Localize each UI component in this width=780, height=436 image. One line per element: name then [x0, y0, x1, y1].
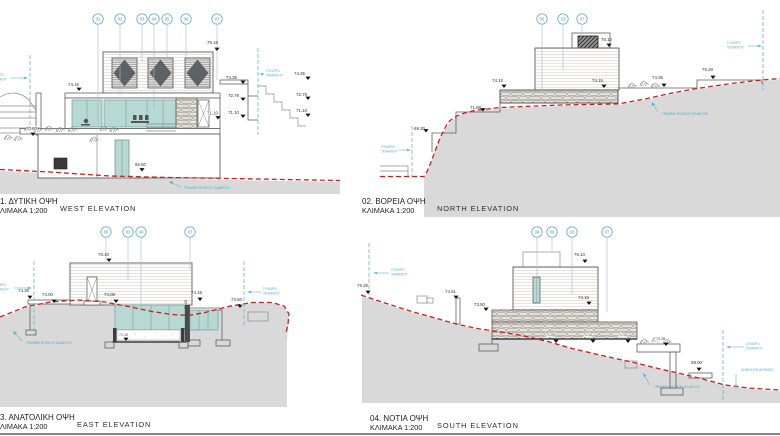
svg-text:71.10: 71.10: [119, 333, 128, 337]
title-scale: ΚΛΙΜΑΚΑ 1:200: [370, 423, 422, 432]
svg-text:70.28: 70.28: [656, 337, 665, 341]
svg-text:73.50: 73.50: [231, 297, 243, 302]
boundary-label: ΣΥΝΟΡΟ ΤΕΜΑΧΙΟΥ: [381, 145, 411, 154]
svg-text:03: 03: [126, 230, 131, 235]
glass-wall: [115, 305, 185, 330]
svg-text:ΔΗΜΟΣΙΟΣ ΔΡΟΜΟΣ: ΔΗΜΟΣΙΟΣ ΔΡΟΜΟΣ: [741, 368, 774, 372]
building-ground-floor: [38, 134, 220, 178]
svg-text:71.05: 71.05: [546, 333, 555, 337]
title-english: NORTH ELEVATION: [437, 204, 519, 213]
level-label: 74.15: [68, 82, 82, 91]
glass-wall: [190, 310, 218, 330]
svg-text:06: 06: [104, 230, 109, 235]
boundary-label: ΣΥΝΟΡΟ ΤΕΜΑΧΙΟΥ: [259, 69, 284, 78]
level-label: 73.50: [474, 302, 489, 311]
svg-text:ΤΕΜΑΧΙΟΥ: ΤΕΜΑΧΙΟΥ: [263, 292, 281, 296]
boundary-label: ΣΥΝΟΡΟ ΤΕΜΑΧΙΟΥ: [727, 41, 762, 50]
level-label: 75.28: [702, 67, 716, 79]
svg-text:07: 07: [605, 230, 610, 235]
chimney: [578, 36, 598, 48]
building-upper-block: [70, 263, 192, 305]
svg-text:07: 07: [215, 17, 220, 22]
svg-text:ΣΥΝΟΡΟ: ΣΥΝΟΡΟ: [746, 342, 760, 346]
boundary-label: ΣΥΝΟΡΟ ΤΕΜΑΧΙΟΥ: [247, 287, 281, 296]
dark-pier: [185, 305, 190, 342]
svg-text:03: 03: [561, 17, 566, 22]
svg-text:74.15: 74.15: [578, 295, 590, 300]
level-label: 75.28: [357, 283, 371, 294]
svg-text:06: 06: [540, 17, 545, 22]
title-english: EAST ELEVATION: [77, 420, 151, 429]
svg-text:75.28: 75.28: [702, 67, 714, 72]
svg-text:ΤΕΜΑΧΙΟΥ: ΤΕΜΑΧΙΟΥ: [381, 150, 399, 154]
svg-text:66.50: 66.50: [135, 162, 147, 167]
planting: [628, 81, 660, 88]
louver-window: [185, 58, 210, 88]
svg-text:ΓΡΑΜΜΗ ΦΥΣΙΚΟΥ ΕΔΑΦΟΥΣ: ΓΡΑΜΜΗ ΦΥΣΙΚΟΥ ΕΔΑΦΟΥΣ: [662, 112, 708, 116]
title-greek: 3. ΑΝΑΤΟΛΙΚΗ ΟΨΗ: [0, 413, 75, 422]
svg-text:71.10: 71.10: [618, 333, 627, 337]
svg-text:06: 06: [184, 17, 189, 22]
east-elevation-view: ΣΥΝΟΡΟ ΤΕΜΑΧΙΟΥ ΣΥΝΟΡΟ ΤΕΜΑΧΙΟΥ ΓΡΑΜΜΗ Φ…: [0, 227, 289, 431]
svg-text:76.10: 76.10: [98, 252, 110, 257]
right-wing: [220, 80, 306, 126]
svg-text:ΤΕΜΑΧΙΟΥ: ΤΕΜΑΧΙΟΥ: [746, 347, 764, 351]
svg-text:ΣΥΝΟΡΟ: ΣΥΝΟΡΟ: [381, 145, 395, 149]
louver-window: [112, 58, 137, 88]
svg-text:03: 03: [570, 230, 575, 235]
svg-text:74.08: 74.08: [104, 292, 116, 297]
level-label: 72.79: [296, 92, 311, 100]
svg-text:74.35: 74.35: [652, 75, 664, 80]
svg-text:ΣΥΝΟΡΟ: ΣΥΝΟΡΟ: [727, 41, 741, 45]
svg-text:71.10: 71.10: [207, 111, 219, 116]
level-label: 71.10: [228, 110, 246, 118]
boundary-label: ΣΥΝΟΡΟ ΤΕΜΑΧΙΟΥ: [373, 268, 409, 277]
view-title: 3. ΑΝΑΤΟΛΙΚΗ ΟΨΗ ΛΙΜΑΚΑ 1:200 EAST ELEVA…: [0, 413, 151, 431]
level-label: 76.10: [574, 252, 588, 263]
svg-text:07: 07: [188, 230, 193, 235]
svg-text:ΤΕΜΑΧΙΟΥ: ΤΕΜΑΧΙΟΥ: [727, 46, 745, 50]
svg-text:01: 01: [96, 17, 101, 22]
section-marker: 05: [162, 14, 172, 58]
svg-text:ΣΥΝΟΡΟ: ΣΥΝΟΡΟ: [0, 283, 6, 287]
title-greek: 1. ΔΥΤΙΚΗ ΟΨΗ: [0, 197, 58, 206]
svg-text:74.15: 74.15: [592, 78, 604, 83]
svg-text:76.10: 76.10: [574, 252, 586, 257]
title-english: WEST ELEVATION: [60, 204, 136, 213]
svg-text:06: 06: [550, 230, 555, 235]
terrace-slab: [20, 129, 220, 135]
svg-text:ΤΕΜΑΧΙΟΥ: ΤΕΜΑΧΙΟΥ: [266, 74, 284, 78]
view-title: 04. ΝΟΤΙΑ ΟΨΗ ΚΛΙΜΑΚΑ 1:200 SOUTH ELEVAT…: [370, 414, 519, 432]
north-elevation-view: ΣΥΝΟΡΟ ΤΕΜΑΧΙΟΥ ΣΥΝΟΡΟ ΤΕΜΑΧΙΟΥ ΓΡΑΜΜΗ Φ…: [362, 10, 780, 217]
svg-text:74.35: 74.35: [18, 288, 30, 293]
boundary-label: ΣΥΝΟΡΟ ΤΕΜΑΧΙΟΥ: [0, 73, 28, 82]
south-elevation-view: ΣΥΝΟΡΟ ΤΕΜΑΧΙΟΥ ΣΥΝΟΡΟ ΤΕΜΑΧΙΟΥ ΔΗΜΟΣΙΟΣ…: [357, 227, 780, 432]
level-label: 74.35: [18, 288, 33, 299]
stone-wall: [500, 90, 618, 103]
basement-window: [54, 158, 67, 169]
svg-text:ΓΡΑΜΜΗ ΦΥΣΙΚΟΥ ΕΔΑΦΟΥΣ: ΓΡΑΜΜΗ ΦΥΣΙΚΟΥ ΕΔΑΦΟΥΣ: [654, 385, 700, 389]
svg-text:74.00: 74.00: [42, 292, 54, 297]
view-title: 1. ΔΥΤΙΚΗ ΟΨΗ ΛΙΜΑΚΑ 1:200 WEST ELEVATIO…: [0, 197, 136, 215]
section-marker: 06: [181, 14, 191, 58]
west-elevation-view: ΣΥΝΟΡΟ ΤΕΜΑΧΙΟΥ ΣΥΝΟΡΟ ΤΕΜΑΧΙΟΥ ΓΡΑΜΜΗ Φ…: [0, 14, 340, 215]
public-road-label: ΔΗΜΟΣΙΟΣ ΔΡΟΜΟΣ: [735, 368, 774, 389]
svg-text:70.80: 70.80: [26, 126, 38, 131]
svg-text:71.10: 71.10: [583, 333, 592, 337]
svg-text:72.79: 72.79: [228, 93, 240, 98]
title-scale: ΛΙΜΑΚΑ 1:200: [0, 206, 47, 215]
svg-text:ΣΥΝΟΡΟ: ΣΥΝΟΡΟ: [263, 287, 277, 291]
svg-text:03: 03: [140, 17, 145, 22]
svg-text:ΤΕΜΑΧΙΟΥ: ΤΕΜΑΧΙΟΥ: [391, 273, 409, 277]
svg-text:72.79: 72.79: [296, 92, 308, 97]
level-label: 74.35: [294, 71, 311, 80]
level-label: 71.10: [296, 108, 311, 117]
svg-text:73.25: 73.25: [184, 300, 188, 309]
drawing-sheet: ΣΥΝΟΡΟ ΤΕΜΑΧΙΟΥ ΣΥΝΟΡΟ ΤΕΜΑΧΙΟΥ ΓΡΑΜΜΗ Φ…: [0, 0, 780, 436]
level-label: 76.10: [98, 252, 112, 262]
svg-text:71.10: 71.10: [296, 108, 308, 113]
title-english: SOUTH ELEVATION: [437, 421, 519, 430]
level-label: 74.51: [445, 289, 459, 299]
svg-text:02: 02: [118, 17, 123, 22]
section-marker: 07: [577, 14, 587, 34]
level-label: 73.25: [184, 300, 188, 309]
svg-text:74.15: 74.15: [191, 290, 203, 295]
svg-text:71.10: 71.10: [228, 110, 240, 115]
svg-text:04: 04: [152, 17, 157, 22]
building-upper-block: [103, 52, 213, 93]
svg-text:ΤΕΜΑΧΙΟΥ: ΤΕΜΑΧΙΟΥ: [0, 288, 10, 292]
level-label: 72.79: [228, 93, 246, 101]
svg-text:ΓΡΑΜΜΗ ΦΥΣΙΚΟΥ ΕΔΑΦΟΥΣ: ΓΡΑΜΜΗ ΦΥΣΙΚΟΥ ΕΔΑΦΟΥΣ: [184, 186, 230, 190]
title-greek: 04. ΝΟΤΙΑ ΟΨΗ: [370, 414, 428, 423]
level-label: 74.15: [191, 290, 203, 301]
svg-text:ΣΥΝΟΡΟ: ΣΥΝΟΡΟ: [0, 73, 4, 77]
elevations-drawing: ΣΥΝΟΡΟ ΤΕΜΑΧΙΟΥ ΣΥΝΟΡΟ ΤΕΜΑΧΙΟΥ ΓΡΑΜΜΗ Φ…: [0, 0, 780, 436]
level-label: 74.15: [492, 78, 507, 88]
louver-window: [148, 58, 173, 88]
svg-text:ΣΥΝΟΡΟ: ΣΥΝΟΡΟ: [266, 69, 280, 73]
level-label: 68.00: [691, 360, 703, 371]
svg-text:ΣΥΝΟΡΟ: ΣΥΝΟΡΟ: [391, 268, 405, 272]
stone-pier: [176, 98, 197, 129]
svg-text:71.68: 71.68: [470, 105, 482, 110]
section-marker: 06: [101, 227, 111, 263]
lower-structure: [380, 166, 408, 177]
svg-text:78.19: 78.19: [207, 40, 219, 45]
svg-text:68.00: 68.00: [691, 360, 703, 365]
svg-text:74.35: 74.35: [226, 75, 238, 80]
boundary-label: ΣΥΝΟΡΟ ΤΕΜΑΧΙΟΥ: [726, 342, 764, 351]
svg-text:74.15: 74.15: [68, 82, 80, 87]
svg-text:04: 04: [139, 230, 144, 235]
svg-text:ΤΕΜΑΧΙΟΥ: ΤΕΜΑΧΙΟΥ: [0, 78, 8, 82]
svg-text:05: 05: [165, 17, 170, 22]
svg-text:73.50: 73.50: [474, 302, 486, 307]
svg-text:74.15: 74.15: [492, 78, 504, 83]
svg-text:74.35: 74.35: [294, 71, 306, 76]
title-scale: ΛΙΜΑΚΑ 1:200: [0, 422, 47, 431]
level-label: 69.30: [414, 126, 429, 133]
svg-text:ΓΡΑΜΜΗ ΦΥΣΙΚΟΥ ΕΔΑΦΟΥΣ: ΓΡΑΜΜΗ ΦΥΣΙΚΟΥ ΕΔΑΦΟΥΣ: [26, 341, 72, 345]
title-greek: 02. ΒΟΡΕΙΑ ΟΨΗ: [362, 197, 426, 206]
svg-text:76.10: 76.10: [601, 37, 613, 42]
svg-text:74.51: 74.51: [445, 289, 457, 294]
building-main-floor: [65, 93, 220, 129]
level-label: 78.19: [207, 40, 220, 51]
svg-text:07: 07: [580, 17, 585, 22]
svg-text:04: 04: [535, 230, 540, 235]
svg-text:69.30: 69.30: [414, 126, 426, 131]
level-label: 74.35: [652, 75, 667, 87]
section-marker: 06: [547, 227, 557, 252]
title-scale: ΚΛΙΜΑΚΑ 1:200: [362, 206, 414, 215]
svg-text:75.28: 75.28: [357, 283, 369, 288]
section-marker: 07: [602, 227, 612, 312]
